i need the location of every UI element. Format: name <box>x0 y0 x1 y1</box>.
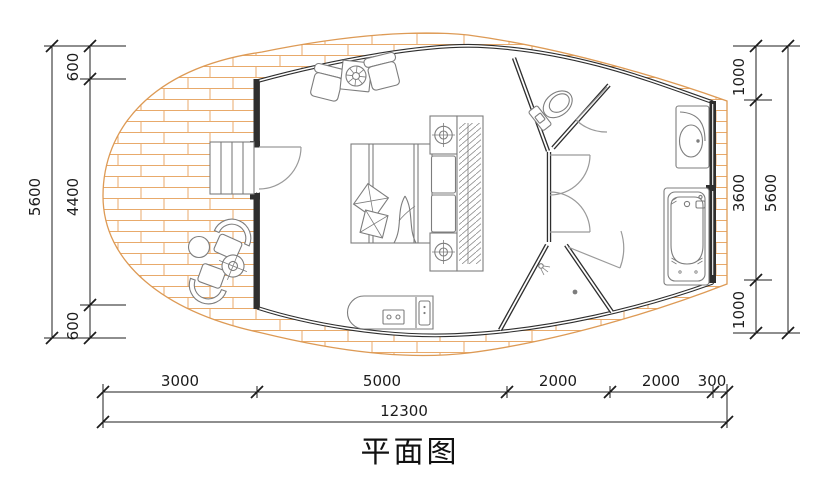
hanger-rail-hatch <box>459 123 481 264</box>
dim-bottom-300: 300 <box>698 372 727 390</box>
drawing-title: 平面图 <box>361 435 460 470</box>
floor-plan-svg: 5600 600 4400 600 1000 3600 1000 5600 30… <box>0 0 837 496</box>
entry-stairs <box>210 142 254 194</box>
dimension-right: 1000 3600 1000 5600 <box>730 40 800 339</box>
dim-right-1000-bottom: 1000 <box>730 291 748 329</box>
dim-bottom-3000: 3000 <box>161 372 199 390</box>
dim-left-600-bottom: 600 <box>64 312 82 341</box>
floor-drain <box>573 290 578 295</box>
double-bed <box>351 144 432 243</box>
left-wall-lower <box>254 193 260 309</box>
washbasin <box>676 106 709 168</box>
pillow-2 <box>360 210 388 238</box>
bathtub <box>664 188 709 285</box>
kitchen-counter <box>348 296 434 329</box>
wardrobe <box>430 116 483 271</box>
dim-left-600-top: 600 <box>64 53 82 82</box>
dim-left-4400: 4400 <box>64 178 82 216</box>
dim-right-outer-label: 5600 <box>762 174 780 212</box>
dim-right-3600: 3600 <box>730 174 748 212</box>
dim-bottom-5000: 5000 <box>363 372 401 390</box>
dim-right-1000-top: 1000 <box>730 58 748 96</box>
dim-left-outer-label: 5600 <box>26 178 44 216</box>
dimension-bottom: 3000 5000 2000 2000 300 12300 <box>97 372 733 428</box>
dim-bottom-2000-b: 2000 <box>642 372 680 390</box>
floor-plan: 5600 600 4400 600 1000 3600 1000 5600 30… <box>0 0 837 496</box>
dim-bottom-2000-a: 2000 <box>539 372 577 390</box>
dim-bottom-total: 12300 <box>380 402 428 420</box>
left-wall-upper <box>254 79 260 147</box>
side-table <box>189 237 210 258</box>
